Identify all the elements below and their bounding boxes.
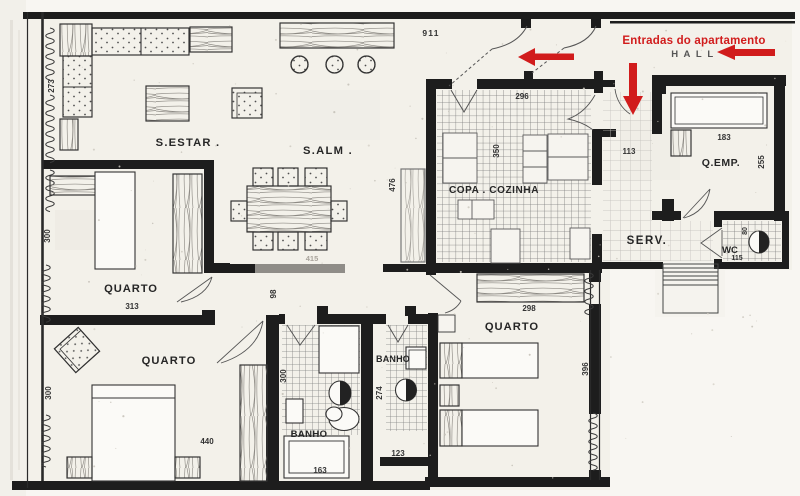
svg-text:QUARTO: QUARTO (142, 355, 197, 367)
svg-text:Q.EMP.: Q.EMP. (702, 157, 740, 169)
svg-text:Entradas do apartamento: Entradas do apartamento (622, 35, 765, 47)
svg-text:350: 350 (492, 144, 501, 158)
svg-text:113: 113 (623, 147, 636, 156)
svg-text:255: 255 (757, 155, 766, 169)
svg-text:396: 396 (581, 362, 590, 376)
svg-text:300: 300 (43, 229, 52, 243)
svg-text:98: 98 (269, 289, 278, 298)
svg-text:S.ALM .: S.ALM . (303, 145, 353, 157)
svg-text:123: 123 (391, 449, 405, 458)
svg-text:BANHO: BANHO (291, 429, 328, 440)
svg-text:273: 273 (47, 79, 56, 93)
svg-text:COPA . COZINHA: COPA . COZINHA (449, 185, 539, 196)
svg-text:QUARTO: QUARTO (485, 321, 539, 333)
svg-text:440: 440 (200, 437, 214, 446)
svg-text:296: 296 (515, 92, 529, 101)
svg-text:H A L L: H A L L (671, 49, 715, 60)
svg-text:274: 274 (375, 386, 384, 400)
svg-text:300: 300 (44, 386, 53, 400)
svg-text:80: 80 (742, 227, 749, 235)
svg-text:SERV.: SERV. (627, 235, 668, 247)
svg-text:911: 911 (422, 28, 439, 38)
svg-text:476: 476 (388, 178, 397, 192)
svg-text:415: 415 (306, 254, 319, 263)
svg-text:QUARTO: QUARTO (104, 283, 158, 295)
svg-text:BANHO: BANHO (376, 354, 410, 364)
svg-text:S.ESTAR .: S.ESTAR . (156, 137, 221, 149)
svg-text:163: 163 (313, 466, 327, 475)
svg-text:300: 300 (279, 369, 288, 383)
svg-text:115: 115 (731, 255, 742, 262)
svg-text:183: 183 (717, 133, 731, 142)
svg-text:313: 313 (125, 302, 139, 311)
svg-text:298: 298 (522, 304, 536, 313)
